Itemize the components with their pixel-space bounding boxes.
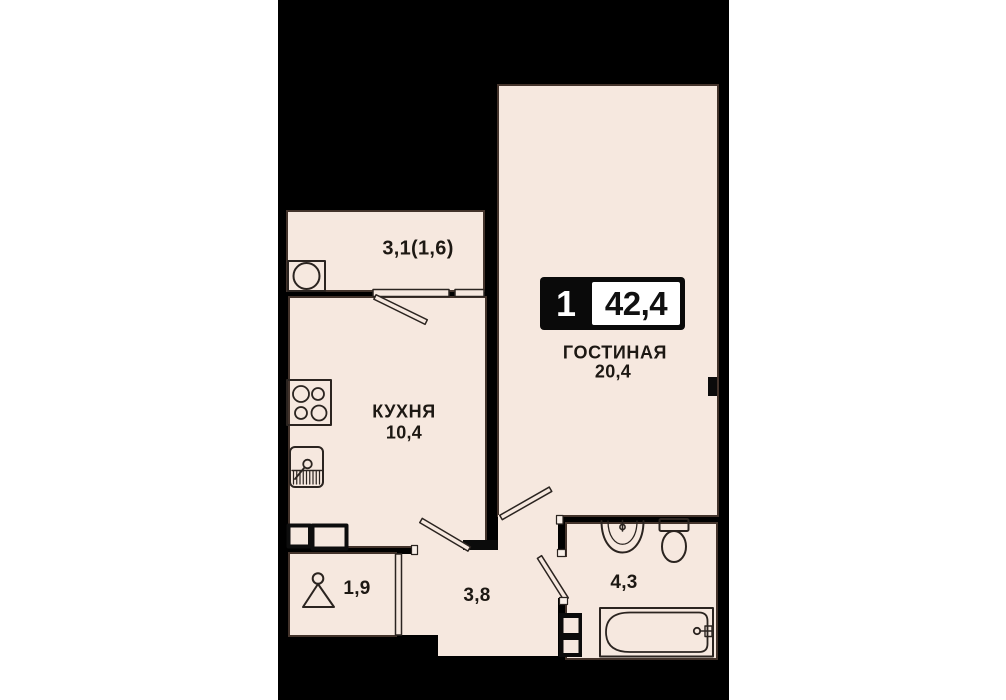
- label-balcony-area: 3,1(1,6): [382, 238, 453, 261]
- label-hall-area: 3,8: [463, 585, 490, 607]
- corridor-to-living: [498, 515, 558, 554]
- hall-left: [402, 554, 438, 635]
- area-badge: 1 42,4: [540, 277, 685, 330]
- hall-main: [438, 550, 558, 656]
- wall-l-segment: [463, 540, 498, 550]
- label-closet-area: 1,9: [343, 578, 370, 600]
- label-living-area: 20,4: [595, 362, 631, 383]
- bath-doorway: [558, 557, 567, 598]
- label-kitchen-name: КУХНЯ: [372, 402, 436, 423]
- kitchen-doorway: [417, 543, 463, 554]
- label-living-name: ГОСТИНАЯ: [563, 343, 667, 364]
- room-bathroom: [567, 524, 716, 658]
- badge-total-area: 42,4: [605, 285, 667, 323]
- label-bath-area: 4,3: [610, 572, 637, 594]
- badge-rooms-count: 1: [540, 277, 592, 330]
- wall-pilaster-notch: [708, 377, 717, 396]
- floorplan-canvas: 1 42,4 3,1(1,6) ГОСТИНАЯ 20,4 КУХНЯ 10,4…: [0, 0, 1006, 700]
- badge-area-box: 42,4: [592, 282, 680, 325]
- label-kitchen-area: 10,4: [386, 423, 422, 444]
